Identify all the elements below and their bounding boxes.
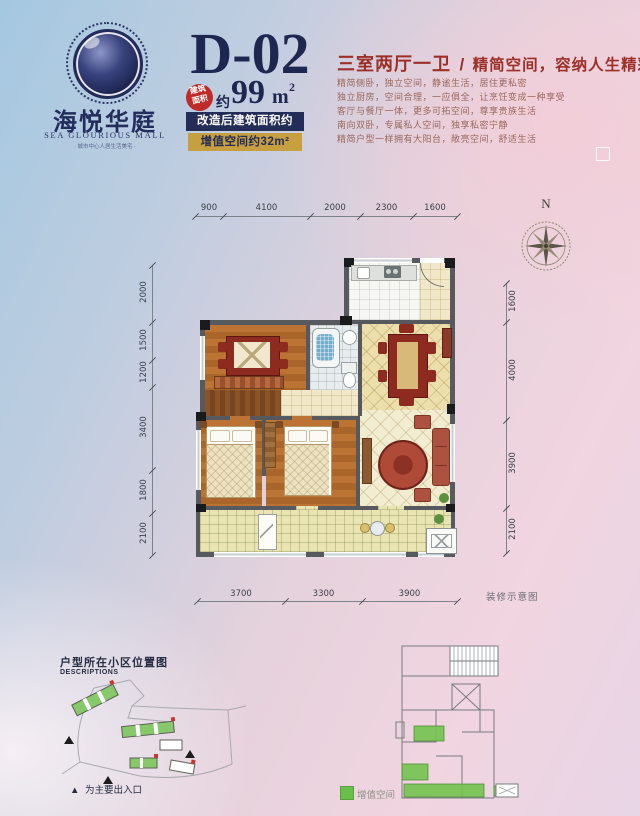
wall-study-top — [200, 320, 348, 325]
wall-bedrooms-top — [196, 416, 360, 420]
intro-subtitle: 精简空间，容纳人生精彩 — [473, 57, 640, 74]
balcony-table — [370, 521, 385, 536]
key-plan — [388, 636, 568, 806]
site-map-note: ▲ 为主要出入口 — [70, 782, 142, 796]
dim-top-4: 2300 — [360, 203, 413, 213]
dim-top-5: 1600 — [413, 203, 457, 213]
site-map-title: 户型所在小区位置图 — [60, 654, 168, 670]
brand-logo: 海悦华庭 SEA GLOURIOUS MALL · 城市中心人居生活美宅 · — [40, 18, 170, 158]
room-hallway — [281, 390, 362, 416]
area-value: 99 — [231, 74, 265, 112]
dim-left-6: 2100 — [139, 518, 149, 548]
area-unit: m — [272, 86, 289, 109]
balcony-panel — [258, 514, 277, 550]
area-badge: 建筑 面积 — [183, 81, 215, 113]
dining-table — [388, 334, 428, 398]
logo-emblem-icon — [73, 29, 143, 99]
dim-top-2: 4100 — [223, 203, 310, 213]
dim-right-4: 2100 — [508, 514, 518, 544]
corner-decoration — [596, 147, 610, 161]
site-map: 户型所在小区位置图 DESCRIPTIONS — [32, 648, 252, 806]
armchair-1 — [414, 415, 431, 429]
floor-plan — [196, 258, 458, 558]
master-window — [196, 430, 201, 490]
balcony-window-2 — [324, 552, 406, 557]
living-window — [450, 424, 455, 482]
kitchen-stove — [384, 266, 401, 278]
dim-bottom-1: 3700 — [197, 589, 285, 599]
balcony-window-1 — [214, 552, 306, 557]
armchair-2 — [414, 488, 431, 502]
brand-tagline: · 城市中心人居生活美宅 · — [40, 142, 170, 150]
bathtub — [312, 328, 340, 368]
brand-name-en: SEA GLOURIOUS MALL — [40, 130, 170, 140]
dim-right-1: 1600 — [508, 286, 518, 316]
dim-chain-bottom — [197, 601, 457, 602]
dim-left-1: 2000 — [139, 277, 149, 307]
dim-right-3: 3900 — [508, 448, 518, 478]
dim-top-1: 900 — [195, 203, 223, 213]
key-plan-drawing — [392, 636, 542, 802]
room-deck — [205, 390, 281, 416]
area-figure: 约 99 m 2 — [216, 80, 326, 114]
balcony-plant-icon — [434, 514, 444, 524]
second-bed — [284, 426, 332, 496]
room-balcony — [200, 510, 451, 552]
study-window — [200, 336, 205, 380]
dim-bottom-3: 3900 — [362, 589, 457, 599]
dim-left-3: 1200 — [139, 357, 149, 387]
dim-left-5: 1800 — [139, 475, 149, 505]
dim-bottom-2: 3300 — [285, 589, 362, 599]
kitchen-window — [354, 258, 412, 263]
bonus-space-bar: 增值空间约32m² — [188, 133, 302, 151]
area-unit-sup: 2 — [289, 80, 295, 95]
dim-top-3: 2000 — [310, 203, 360, 213]
compass-north-label: N — [514, 196, 578, 212]
legend-swatch — [340, 786, 354, 800]
study-bench — [214, 376, 284, 389]
ac-platform — [426, 528, 457, 554]
compass-rose-icon — [514, 213, 578, 279]
site-map-subtitle: DESCRIPTIONS — [60, 669, 119, 676]
bath-sink — [342, 330, 357, 345]
living-rug — [378, 440, 428, 490]
legend-label: 增值空间 — [357, 787, 395, 801]
floorplan-poster: 海悦华庭 SEA GLOURIOUS MALL · 城市中心人居生活美宅 · D… — [0, 0, 640, 816]
entry-cabinet — [442, 328, 452, 358]
entrance-marker-icon: ▲ — [70, 785, 79, 796]
study-table — [226, 336, 280, 376]
intro-line-1: 精简侧卧，独立空间，静谧生活，居住更私密 — [337, 76, 527, 89]
master-bed — [206, 426, 256, 498]
intro-line-4: 南向双卧，专属私人空间，独享私密宁静 — [337, 118, 508, 131]
plan-note: 装修示意图 — [486, 589, 539, 603]
wall-balcony-top — [196, 506, 455, 510]
balcony-chair-1 — [360, 523, 370, 533]
wardrobe — [264, 422, 276, 468]
balcony-chair-2 — [385, 523, 395, 533]
living-plant-icon — [439, 493, 449, 503]
tv-cabinet — [362, 438, 372, 484]
intro-line-3: 客厅与餐厅一体，更多可拓空间，尊享贵族生活 — [337, 104, 537, 117]
dim-left-2: 1500 — [139, 325, 149, 355]
sofa — [432, 428, 450, 486]
intro-title: 三室两厅一卫 — [337, 54, 451, 74]
compass: N — [514, 196, 578, 280]
intro-title-row: 三室两厅一卫 / 精简空间，容纳人生精彩 — [337, 50, 640, 76]
toilet-bowl — [343, 372, 356, 388]
dim-chain-top — [195, 216, 457, 217]
intro-separator: / — [455, 55, 468, 74]
area-prefix: 约 — [216, 92, 230, 112]
intro-line-5: 精简户型一样拥有大阳台，敞亮空间，舒适生活 — [337, 132, 537, 145]
site-map-note-text: 为主要出入口 — [82, 785, 142, 796]
kitchen-sink — [357, 267, 370, 279]
rebuilt-area-bar: 改造后建筑面积约131m² — [186, 112, 304, 131]
site-map-drawing — [32, 678, 252, 788]
intro-line-2: 独立厨房，空间合理，一应俱全，让烹饪变成一种享受 — [337, 90, 565, 103]
dim-left-4: 3400 — [139, 412, 149, 442]
dim-right-2: 4000 — [508, 355, 518, 385]
